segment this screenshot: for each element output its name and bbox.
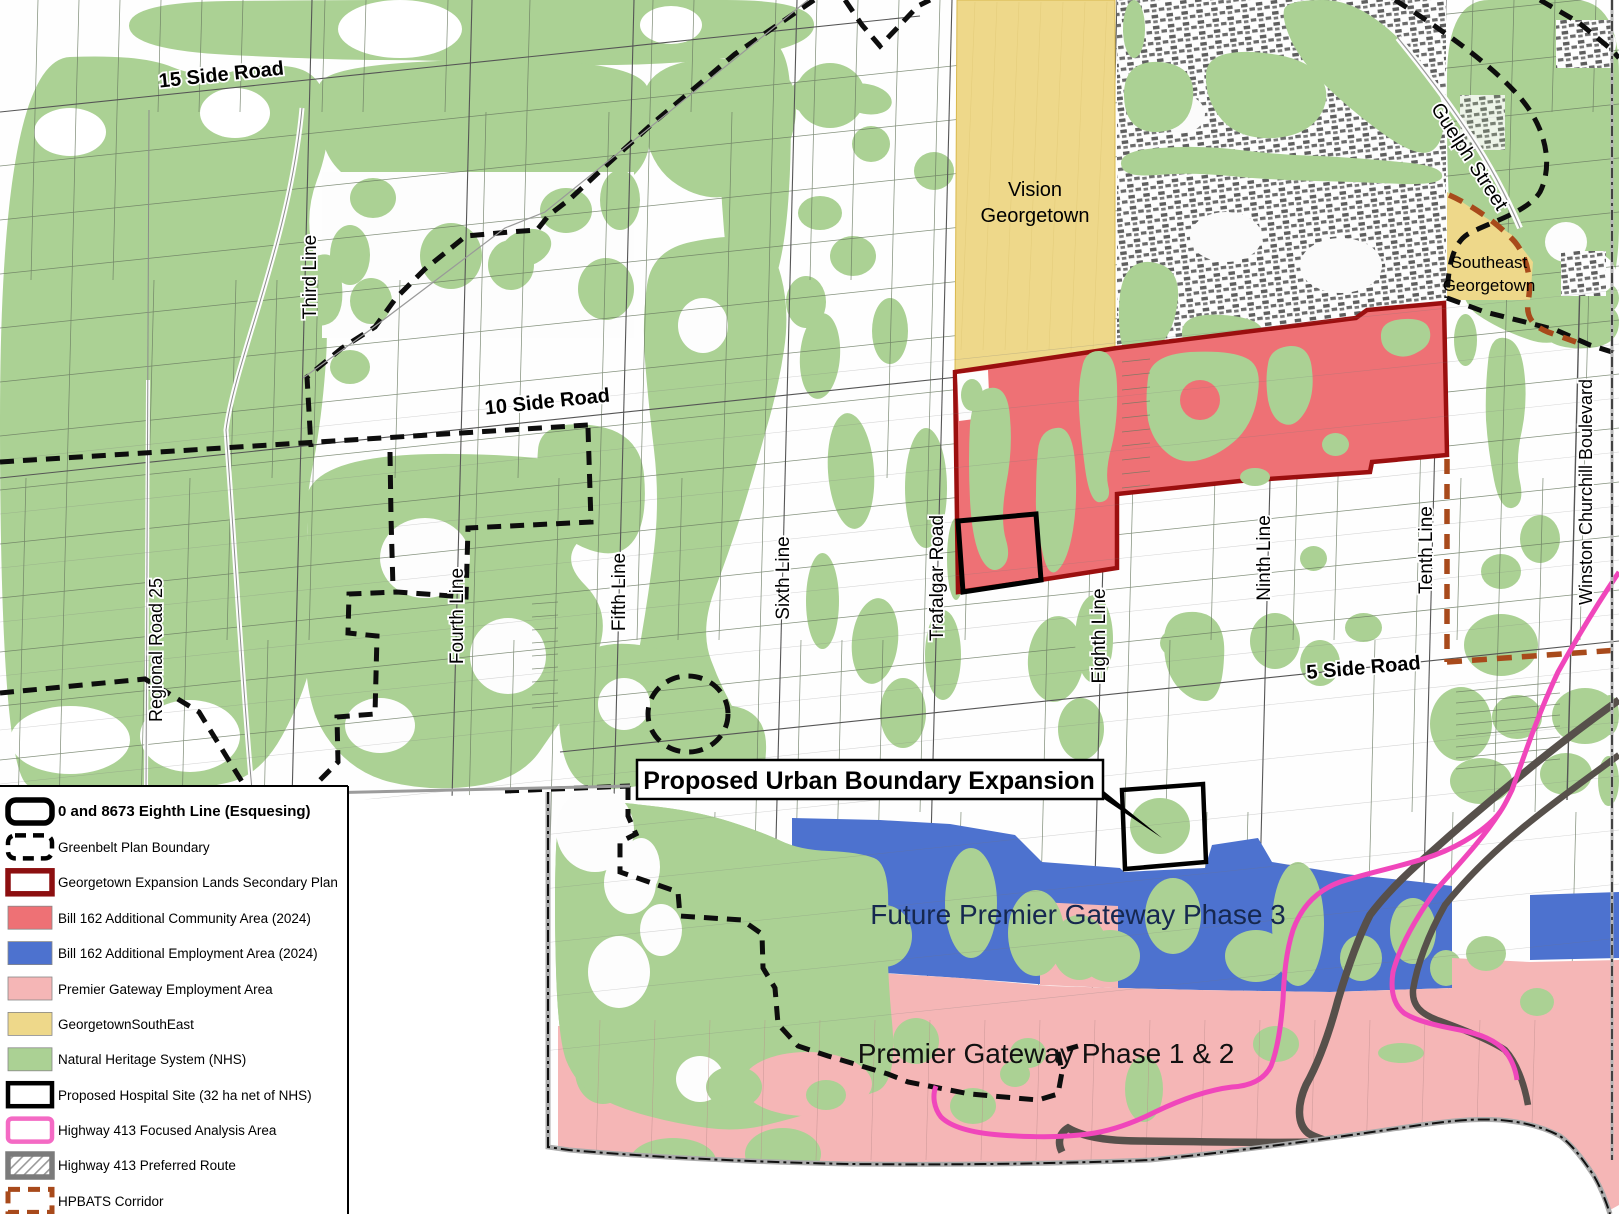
svg-text:Third Line: Third Line [300, 235, 321, 320]
svg-text:Regional Road 25: Regional Road 25 [146, 578, 166, 722]
svg-text:Southeast: Southeast [1451, 253, 1528, 272]
svg-text:Sixth Line: Sixth Line [773, 536, 794, 619]
svg-text:GeorgetownSouthEast: GeorgetownSouthEast [58, 1017, 194, 1032]
svg-text:HPBATS Corridor: HPBATS Corridor [58, 1194, 164, 1209]
svg-text:Highway 413 Focused Analysis A: Highway 413 Focused Analysis Area [58, 1123, 277, 1138]
svg-text:Trafalgar Road: Trafalgar Road [927, 515, 948, 641]
svg-text:Future Premier Gateway Phase 3: Future Premier Gateway Phase 3 [870, 899, 1286, 930]
svg-text:Natural Heritage System (NHS): Natural Heritage System (NHS) [58, 1052, 246, 1067]
svg-text:Eighth Line: Eighth Line [1089, 588, 1110, 683]
svg-text:Georgetown Expansion Lands Sec: Georgetown Expansion Lands Secondary Pla… [58, 875, 338, 890]
svg-text:Premier Gateway Phase 1 & 2: Premier Gateway Phase 1 & 2 [858, 1038, 1235, 1069]
svg-text:0 and 8673 Eighth Line (Esques: 0 and 8673 Eighth Line (Esquesing) [58, 803, 311, 820]
svg-text:Proposed Urban Boundary Expans: Proposed Urban Boundary Expansion [643, 767, 1094, 795]
svg-text:Tenth Line: Tenth Line [1416, 506, 1437, 594]
svg-text:Fifth Line: Fifth Line [609, 553, 630, 631]
svg-text:Bill 162 Additional Community: Bill 162 Additional Community Area (2024… [58, 911, 311, 926]
svg-text:Winston Churchill Boulevard: Winston Churchill Boulevard [1576, 379, 1596, 605]
svg-text:Bill 162 Additional Employment: Bill 162 Additional Employment Area (202… [58, 946, 318, 961]
svg-text:Greenbelt Plan Boundary: Greenbelt Plan Boundary [58, 840, 210, 855]
svg-text:Proposed Hospital Site (32 ha: Proposed Hospital Site (32 ha net of NHS… [58, 1088, 312, 1103]
svg-text:Georgetown: Georgetown [981, 205, 1090, 227]
svg-text:Georgetown: Georgetown [1443, 276, 1536, 295]
svg-text:Vision: Vision [1008, 179, 1062, 201]
svg-text:Premier Gateway Employment Are: Premier Gateway Employment Area [58, 982, 273, 997]
svg-text:Fourth Line: Fourth Line [447, 568, 468, 664]
svg-text:Ninth Line: Ninth Line [1254, 515, 1275, 601]
svg-text:Highway 413 Preferred Route: Highway 413 Preferred Route [58, 1158, 236, 1173]
